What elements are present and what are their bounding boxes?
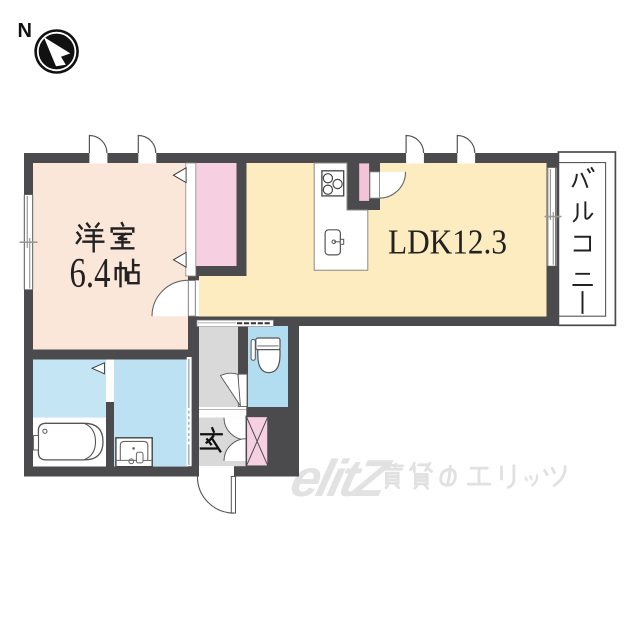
svg-text:N: N	[18, 20, 32, 42]
svg-text:LDK12.3: LDK12.3	[388, 223, 507, 262]
svg-text:6.4: 6.4	[70, 251, 111, 297]
